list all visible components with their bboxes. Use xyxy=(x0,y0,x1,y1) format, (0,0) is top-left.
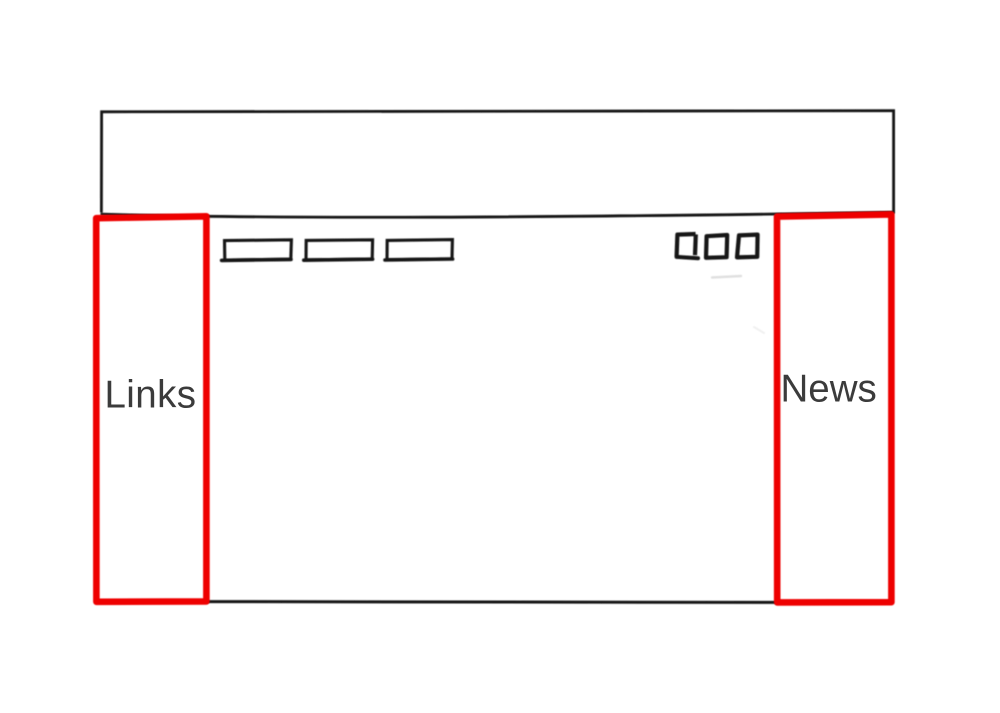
svg-text:Links: Links xyxy=(105,374,197,417)
svg-text:News: News xyxy=(781,368,877,411)
